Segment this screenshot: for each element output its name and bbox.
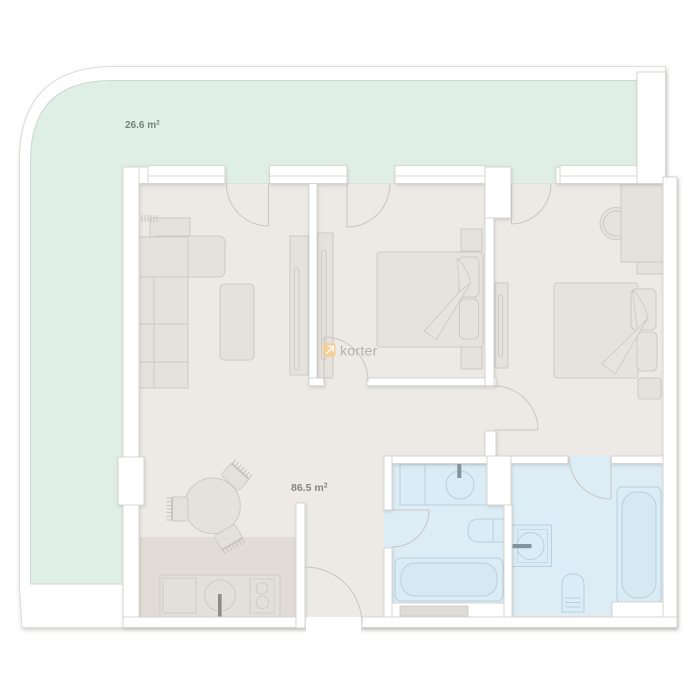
- svg-text:26.6 m2: 26.6 m2: [125, 120, 160, 132]
- svg-text:86.5 m2: 86.5 m2: [291, 482, 328, 494]
- svg-text:korter: korter: [340, 343, 378, 359]
